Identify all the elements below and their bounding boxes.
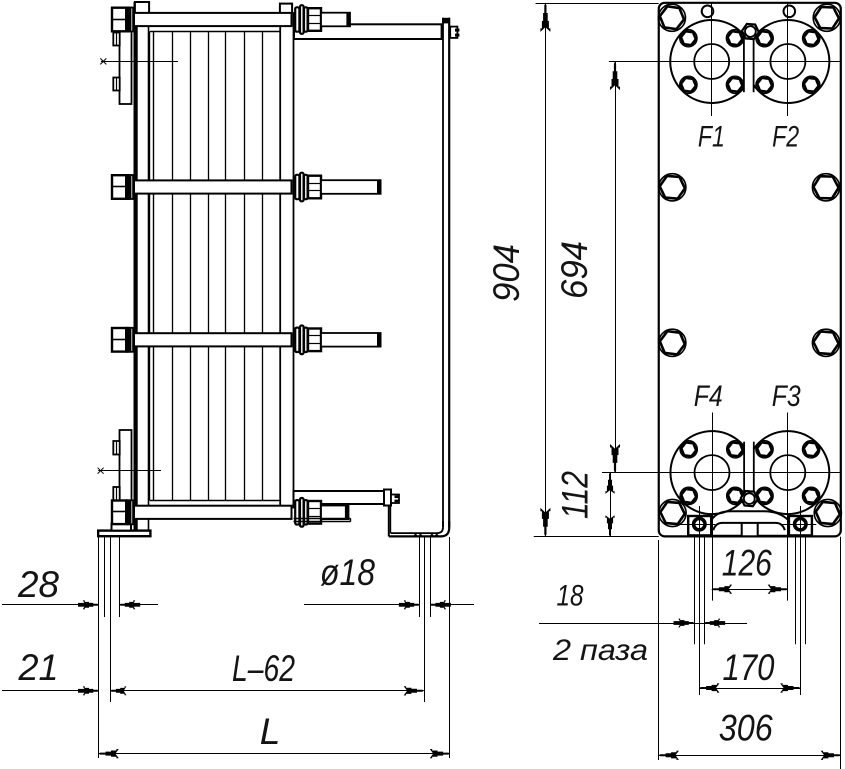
svg-text:F2: F2 — [772, 121, 799, 154]
svg-text:2 паза: 2 паза — [552, 634, 648, 667]
svg-text:ø18: ø18 — [320, 552, 375, 593]
svg-text:18: 18 — [557, 580, 584, 613]
svg-text:F3: F3 — [772, 380, 801, 413]
svg-text:21: 21 — [18, 647, 59, 688]
svg-text:126: 126 — [722, 543, 772, 584]
svg-text:170: 170 — [723, 647, 775, 688]
svg-text:F1: F1 — [698, 121, 725, 154]
svg-text:L: L — [260, 711, 281, 752]
svg-text:112: 112 — [555, 471, 596, 519]
svg-text:L–62: L–62 — [232, 648, 295, 689]
svg-text:F4: F4 — [694, 380, 723, 413]
svg-text:28: 28 — [17, 564, 59, 605]
svg-text:306: 306 — [719, 708, 773, 749]
svg-text:694: 694 — [554, 241, 595, 299]
svg-text:904: 904 — [486, 244, 527, 302]
